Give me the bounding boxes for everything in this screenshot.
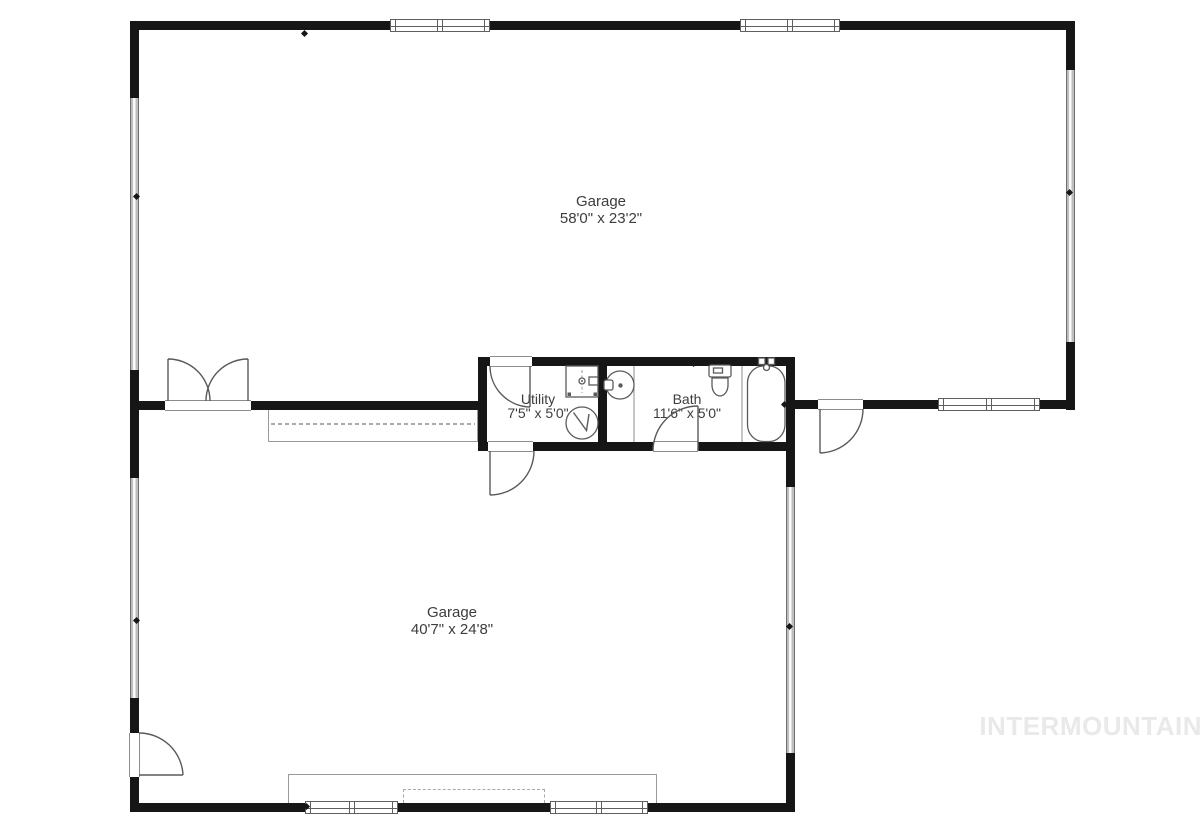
wall-block-south-c bbox=[698, 442, 795, 451]
wall-block-south-b bbox=[533, 442, 653, 451]
utility-south-door-swing bbox=[490, 451, 534, 495]
wall-top-garage-east-upper bbox=[1066, 21, 1075, 70]
wall-divider-east-b bbox=[863, 400, 938, 409]
wall-divider-east-c bbox=[1040, 400, 1075, 409]
wall-divider-west-a bbox=[130, 401, 165, 410]
workbench-dashed-line bbox=[271, 423, 475, 425]
watermark-text: INTERMOUNTAIN bbox=[979, 711, 1200, 742]
wall-bottom-garage-south-b bbox=[398, 803, 550, 812]
garage-door-east-bottom bbox=[786, 487, 795, 753]
window-top-2 bbox=[740, 19, 840, 32]
utility-south-door-opening bbox=[488, 441, 533, 452]
french-door-swing bbox=[168, 359, 248, 401]
french-door-opening bbox=[165, 400, 251, 411]
wall-bottom-garage-west-mid bbox=[130, 698, 139, 733]
wall-top-garage-west-upper bbox=[130, 21, 139, 98]
wall-bottom-garage-east-upper bbox=[786, 451, 795, 487]
room-label-garage-bottom: Garage 40'7" x 24'8" bbox=[332, 604, 572, 638]
exterior-door-swing bbox=[820, 409, 863, 453]
workbench-outline bbox=[268, 410, 478, 442]
wall-bottom-garage-west-upper bbox=[130, 410, 139, 478]
west-door-opening bbox=[129, 733, 140, 777]
overhead-garage-door-dashed bbox=[403, 789, 545, 803]
window-mid-east bbox=[938, 398, 1040, 411]
room-name-bath: Bath bbox=[597, 392, 777, 406]
utility-north-door-opening bbox=[490, 356, 532, 367]
wall-top-garage-north bbox=[130, 21, 1075, 30]
room-dimensions-garage-top: 58'0" x 23'2" bbox=[481, 210, 721, 227]
wall-block-north-b bbox=[532, 357, 795, 366]
dimension-tick bbox=[301, 30, 308, 37]
wall-bottom-garage-east-lower bbox=[786, 753, 795, 812]
garage-door-west-bottom bbox=[130, 478, 139, 698]
wall-divider-east-a bbox=[791, 400, 818, 409]
room-dimensions-garage-bottom: 40'7" x 24'8" bbox=[332, 621, 572, 638]
room-label-bath: Bath 11'6" x 5'0" bbox=[597, 392, 777, 420]
floor-plan: Garage 58'0" x 23'2" Garage 40'7" x 24'8… bbox=[0, 0, 1200, 833]
garage-door-east-top bbox=[1066, 70, 1075, 342]
room-label-garage-top: Garage 58'0" x 23'2" bbox=[481, 193, 721, 227]
exterior-door-opening bbox=[818, 399, 863, 410]
wall-bottom-garage-south-a bbox=[130, 803, 305, 812]
room-name-garage-top: Garage bbox=[481, 193, 721, 210]
bath-door-opening bbox=[653, 441, 698, 452]
garage-door-west-top bbox=[130, 98, 139, 370]
wall-bottom-garage-south-c bbox=[648, 803, 790, 812]
window-top-1 bbox=[390, 19, 490, 32]
west-door-swing bbox=[139, 733, 183, 775]
room-name-garage-bottom: Garage bbox=[332, 604, 572, 621]
room-dimensions-bath: 11'6" x 5'0" bbox=[597, 406, 777, 420]
